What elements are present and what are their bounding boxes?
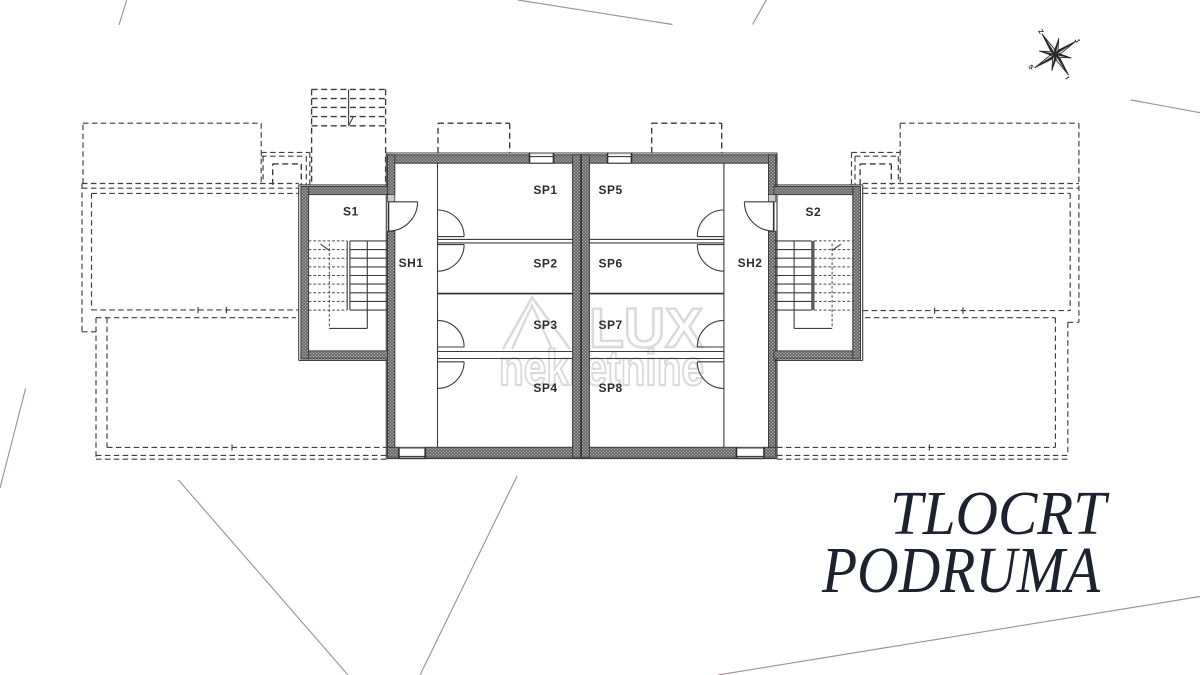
svg-text:SP6: SP6 — [599, 257, 623, 271]
svg-text:SH1: SH1 — [399, 256, 424, 270]
svg-text:SP2: SP2 — [533, 257, 557, 271]
svg-text:SP4: SP4 — [533, 381, 557, 395]
svg-text:SP7: SP7 — [599, 318, 623, 332]
svg-text:S2: S2 — [806, 205, 822, 219]
svg-text:SH2: SH2 — [738, 256, 763, 270]
svg-text:SP1: SP1 — [533, 183, 557, 197]
svg-text:SP3: SP3 — [533, 318, 557, 332]
svg-text:SP5: SP5 — [599, 183, 623, 197]
svg-text:S1: S1 — [343, 205, 359, 219]
svg-text:SP8: SP8 — [599, 381, 623, 395]
svg-text:PODRUMA: PODRUMA — [821, 534, 1100, 607]
